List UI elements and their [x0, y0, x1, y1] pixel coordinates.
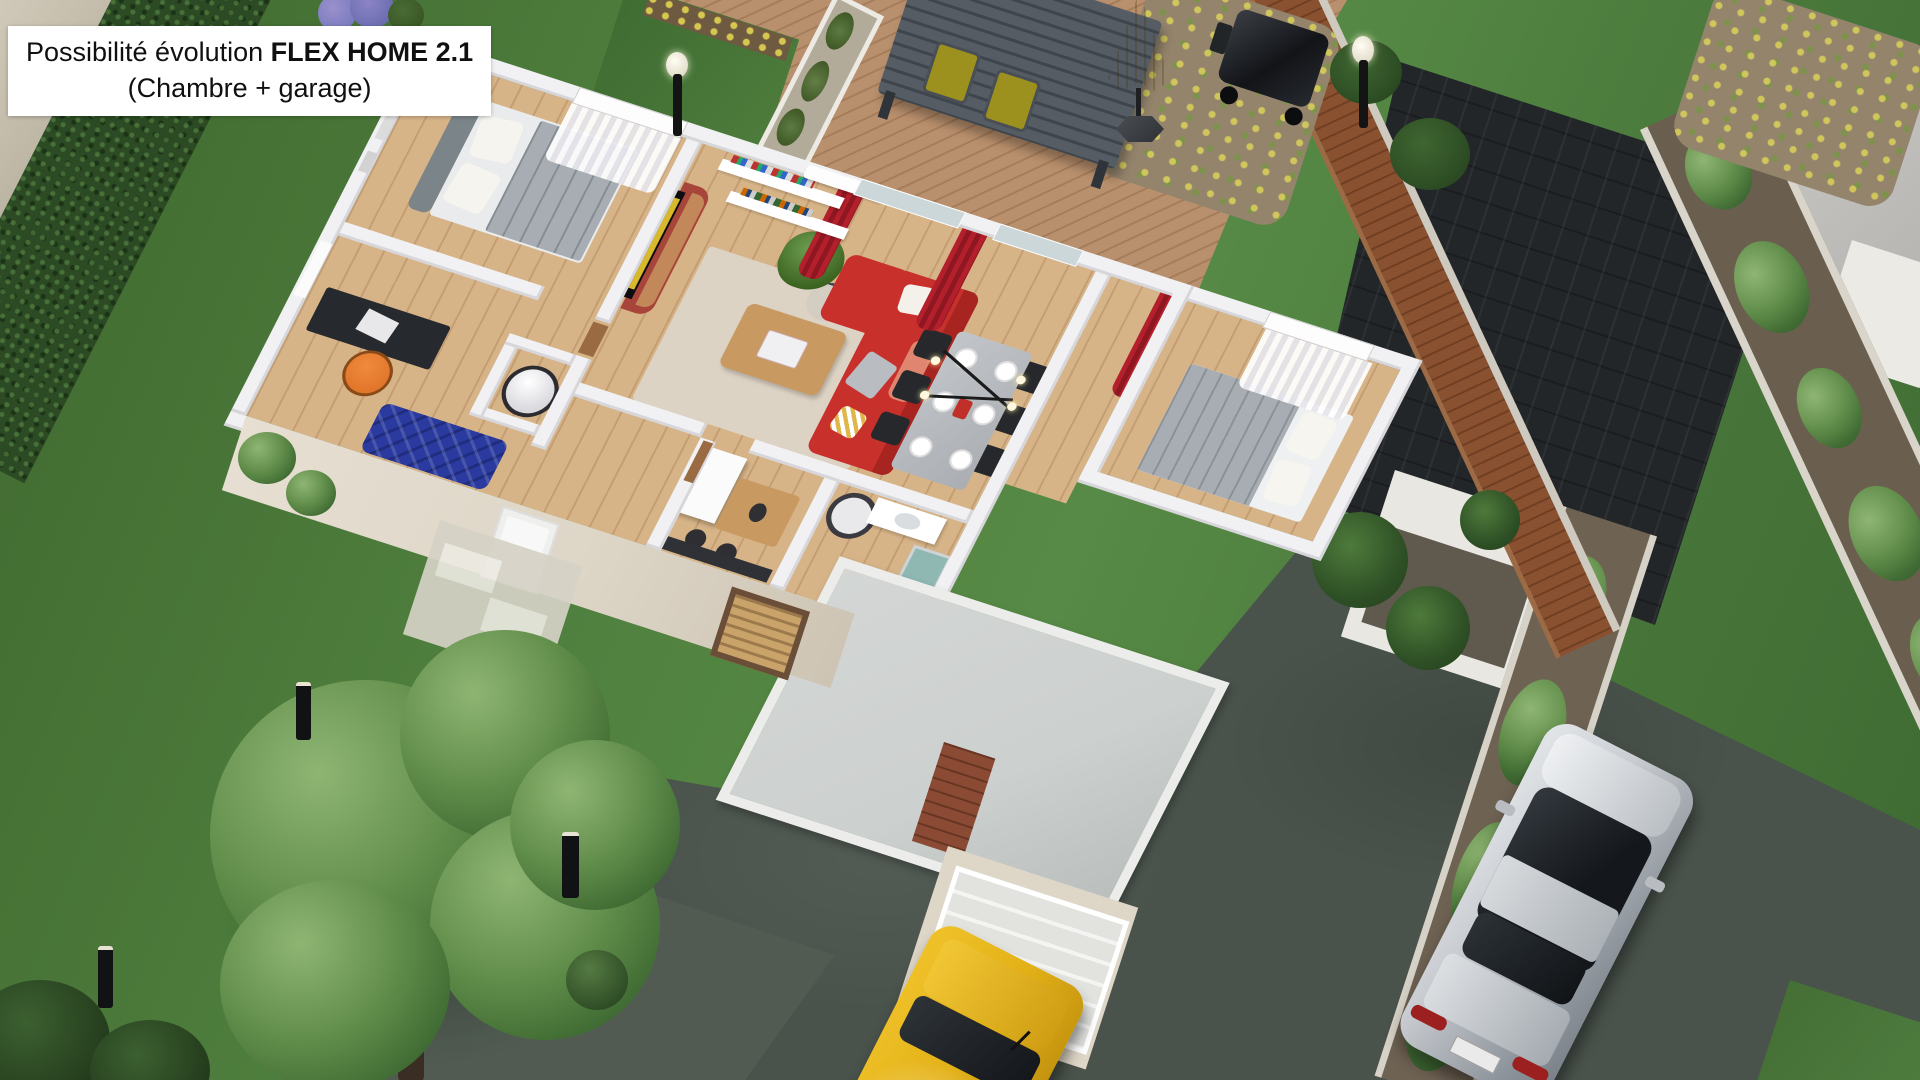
- conifer-tree: [1460, 490, 1520, 550]
- bollard-light: [562, 832, 579, 898]
- plate: [945, 447, 976, 474]
- chandelier-bulb: [918, 390, 931, 401]
- facade-window: [710, 587, 810, 681]
- caption-subtitle: (Chambre + garage): [26, 70, 473, 106]
- bbq-wheel: [1218, 84, 1241, 107]
- bush: [286, 470, 336, 516]
- planter-grass: [820, 8, 860, 55]
- aerial-render-scene: Possibilité évolution FLEX HOME 2.1 (Cha…: [0, 0, 1920, 1080]
- plate: [905, 434, 936, 461]
- garden-lamp: [1350, 36, 1376, 132]
- conifer-tree: [1386, 586, 1470, 670]
- caption-title: Possibilité évolution FLEX HOME 2.1: [26, 34, 473, 70]
- bbq-wheel: [1282, 105, 1305, 128]
- bollard-light: [296, 682, 311, 740]
- chandelier-arm: [925, 394, 1013, 401]
- pillow: [468, 115, 525, 165]
- bush: [238, 432, 296, 484]
- chandelier-bulb: [1015, 375, 1028, 386]
- kitchen-item: [746, 501, 770, 524]
- laptop: [355, 308, 399, 343]
- laptop: [755, 329, 809, 369]
- lamp-post: [1359, 60, 1368, 128]
- caption-model: FLEX HOME 2.1: [271, 37, 474, 67]
- basin: [891, 510, 923, 532]
- shrub: [1720, 229, 1824, 346]
- shrub: [1834, 473, 1920, 593]
- tree-canopy: [220, 880, 450, 1080]
- step-slab: [435, 543, 503, 594]
- lamp-post: [673, 74, 682, 136]
- garden-tree: [180, 620, 700, 1080]
- chandelier-bulb: [1006, 401, 1019, 412]
- caption-prefix: Possibilité évolution: [26, 37, 271, 67]
- planter-grass: [771, 104, 811, 151]
- bollard-light: [98, 946, 113, 1008]
- shrub: [1784, 357, 1874, 458]
- topiary-bush: [566, 950, 628, 1010]
- shrub: [1897, 601, 1920, 710]
- pillow: [441, 161, 503, 216]
- striped-pillow: [828, 404, 869, 440]
- garden-lamp: [664, 52, 690, 140]
- tree-canopy: [510, 740, 680, 910]
- caption-box: Possibilité évolution FLEX HOME 2.1 (Cha…: [8, 26, 491, 116]
- bush: [1390, 118, 1470, 190]
- planter-grass: [795, 57, 835, 106]
